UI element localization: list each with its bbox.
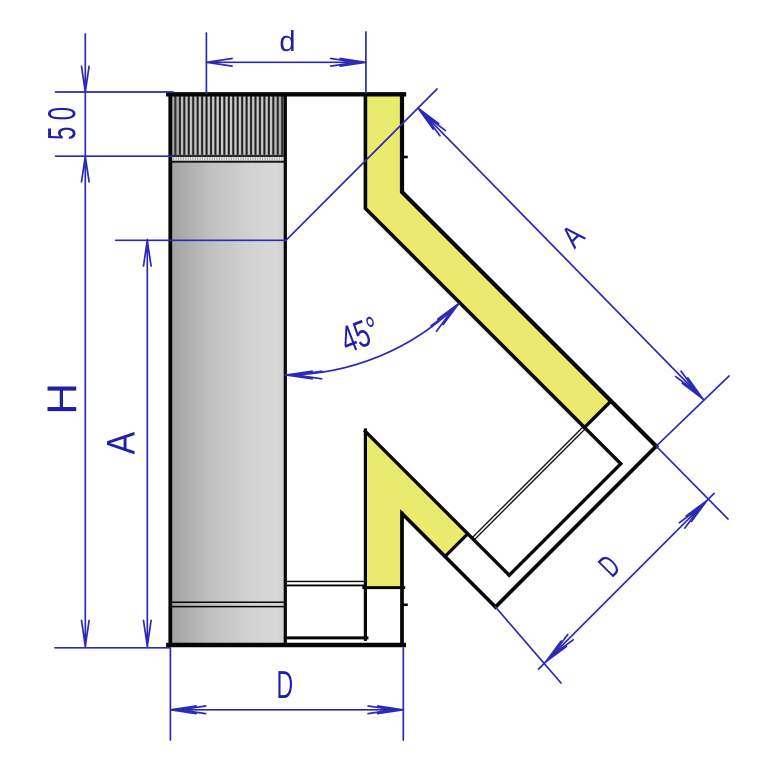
svg-text:A: A <box>98 432 143 455</box>
svg-text:D: D <box>277 663 294 707</box>
svg-text:H: H <box>39 383 86 415</box>
svg-text:50: 50 <box>40 101 83 140</box>
svg-text:d: d <box>279 26 295 58</box>
